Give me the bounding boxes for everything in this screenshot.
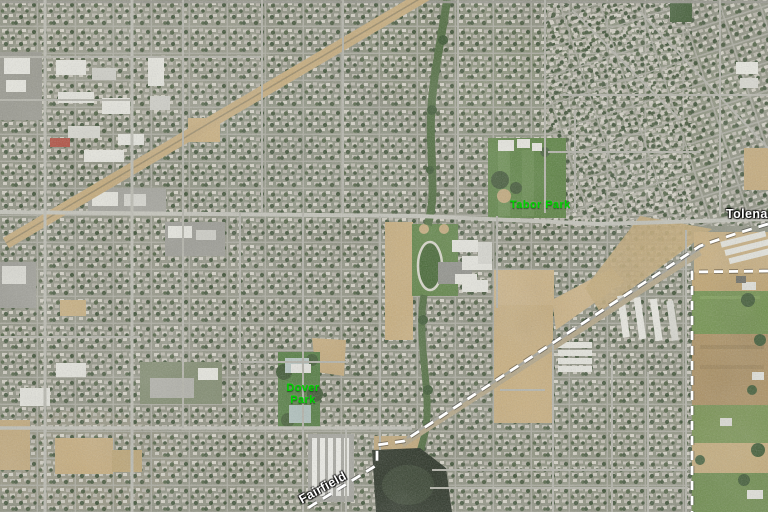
aerial-imagery (0, 0, 768, 512)
satellite-map-view[interactable]: Tabor Park Dover Park Tolenas Fairfield (0, 0, 768, 512)
dover-park-line1: Dover (273, 382, 333, 394)
map-label-dover-park[interactable]: Dover Park (273, 382, 333, 406)
image-grain (0, 0, 768, 512)
map-label-tolenas[interactable]: Tolenas (726, 208, 768, 222)
map-label-tabor-park[interactable]: Tabor Park (510, 199, 571, 211)
dover-park-line2: Park (273, 394, 333, 406)
